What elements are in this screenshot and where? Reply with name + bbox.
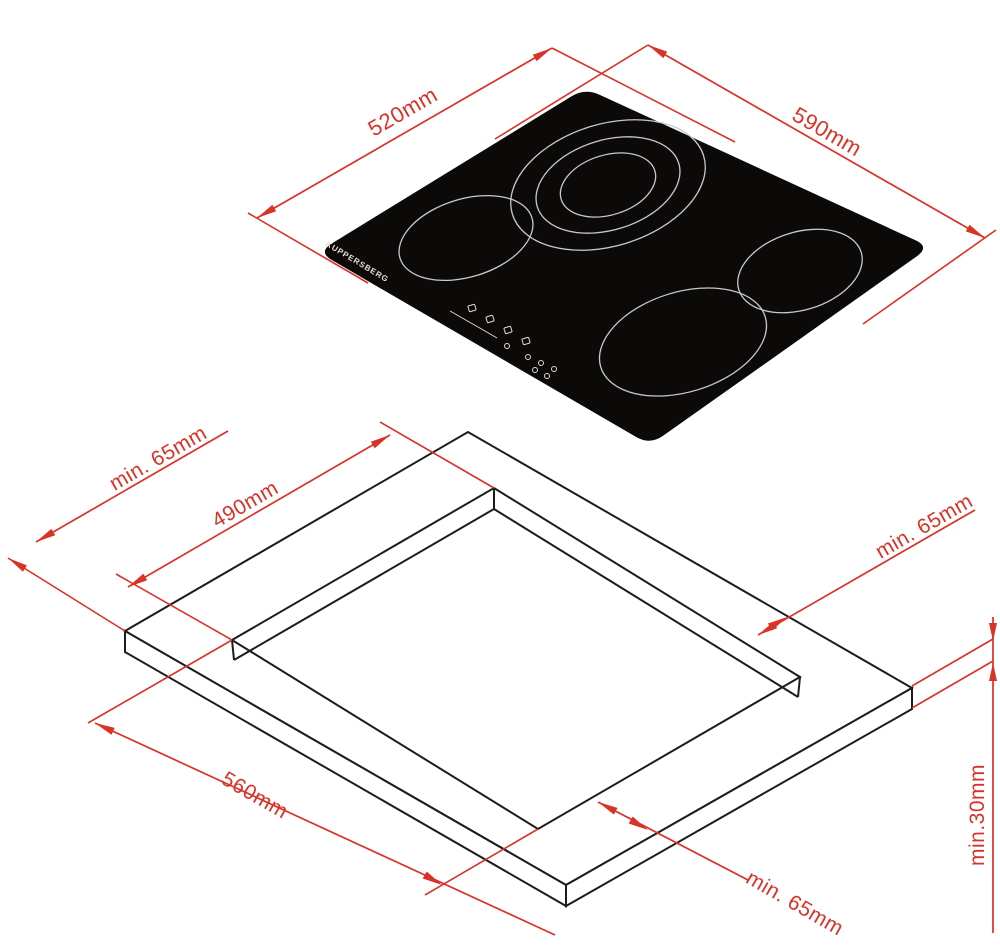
dimension-label-560: 560mm <box>218 767 292 823</box>
arrowhead <box>989 663 997 681</box>
dimension-clearance-bottom: min. 65mm <box>598 802 847 940</box>
clearance-label-bottom: min. 65mm <box>742 866 847 940</box>
clearance-label-top-left: min. 65mm <box>106 421 211 495</box>
extension-line <box>912 661 993 708</box>
extension-line <box>8 558 125 631</box>
worktop-cutout-view: min. 65mm 490mm min. 65mm 560mm min <box>8 421 997 940</box>
hob-top-view: KUPPERSBERG 520mm <box>248 45 996 441</box>
diagram-canvas: KUPPERSBERG 520mm <box>0 0 1000 945</box>
dimension-label-520: 520mm <box>364 82 442 142</box>
installation-diagram: KUPPERSBERG 520mm <box>0 0 1000 945</box>
extension-line <box>912 639 993 686</box>
dimension-thickness: min.30mm <box>912 617 997 933</box>
clearance-label-top-right: min. 65mm <box>872 489 977 563</box>
thickness-label: min.30mm <box>966 764 989 866</box>
dimension-clearance-top-right: min. 65mm <box>758 489 977 635</box>
arrowhead <box>989 623 997 641</box>
arrowhead <box>423 872 442 886</box>
